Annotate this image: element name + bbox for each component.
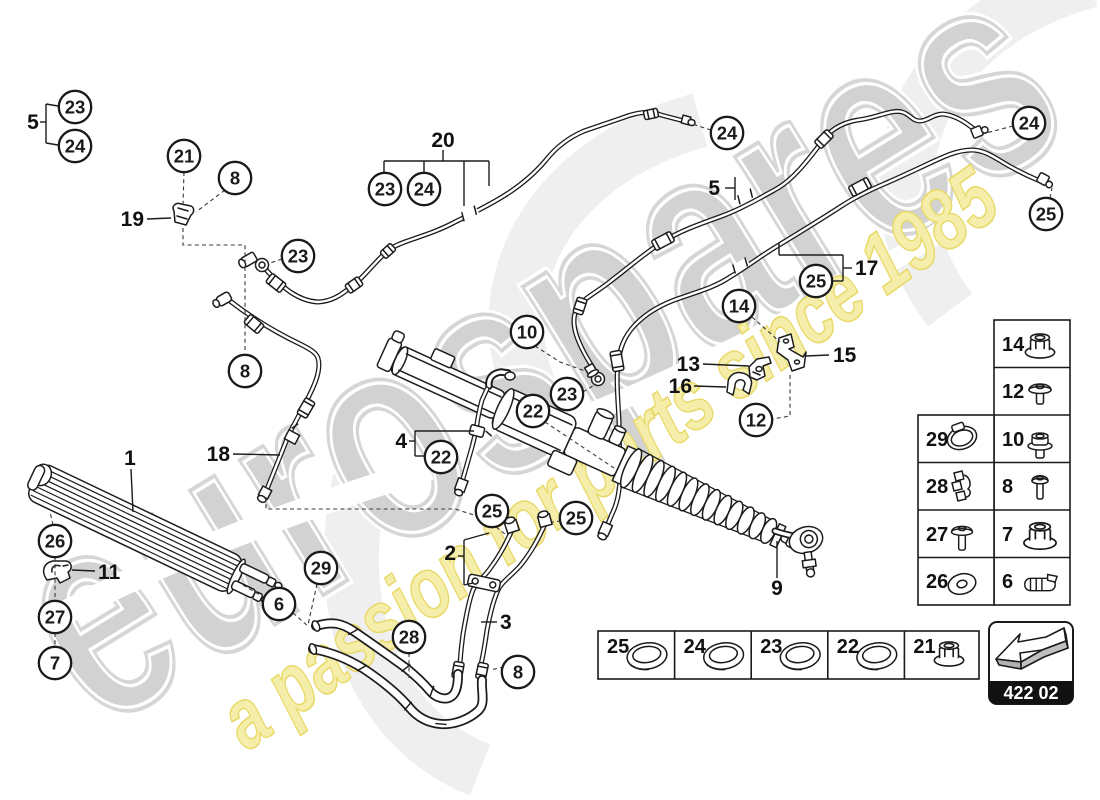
- svg-text:24: 24: [717, 123, 738, 144]
- svg-text:18: 18: [207, 443, 231, 466]
- svg-text:24: 24: [1019, 113, 1040, 134]
- svg-text:10: 10: [517, 322, 538, 343]
- svg-text:19: 19: [121, 208, 144, 231]
- svg-text:12: 12: [1002, 381, 1024, 403]
- svg-text:29: 29: [311, 558, 332, 579]
- svg-text:25: 25: [566, 508, 587, 529]
- svg-text:22: 22: [523, 401, 544, 422]
- svg-text:7: 7: [1002, 524, 1013, 546]
- svg-text:23: 23: [557, 384, 578, 405]
- svg-text:422 02: 422 02: [1003, 683, 1058, 703]
- svg-text:28: 28: [399, 627, 420, 648]
- svg-text:21: 21: [913, 636, 935, 658]
- svg-text:4: 4: [395, 430, 407, 453]
- svg-text:23: 23: [760, 636, 782, 658]
- svg-text:2: 2: [444, 542, 456, 565]
- svg-text:25: 25: [1036, 204, 1057, 225]
- svg-text:7: 7: [50, 653, 60, 674]
- svg-text:8: 8: [1002, 476, 1013, 498]
- svg-text:24: 24: [414, 179, 435, 200]
- svg-text:5: 5: [708, 177, 720, 200]
- svg-text:16: 16: [669, 375, 692, 398]
- svg-text:22: 22: [837, 636, 859, 658]
- svg-text:6: 6: [274, 594, 284, 615]
- svg-text:8: 8: [230, 168, 240, 189]
- svg-text:25: 25: [607, 636, 629, 658]
- svg-text:27: 27: [45, 607, 66, 628]
- svg-text:23: 23: [288, 246, 309, 267]
- svg-text:29: 29: [926, 429, 948, 451]
- svg-text:9: 9: [771, 577, 783, 600]
- svg-text:17: 17: [855, 257, 878, 280]
- svg-text:11: 11: [98, 561, 121, 584]
- svg-text:23: 23: [65, 97, 86, 118]
- svg-text:1: 1: [124, 447, 136, 470]
- svg-text:6: 6: [1002, 571, 1013, 593]
- svg-text:25: 25: [806, 271, 827, 292]
- svg-text:23: 23: [375, 179, 396, 200]
- svg-text:8: 8: [240, 361, 250, 382]
- svg-text:27: 27: [926, 524, 948, 546]
- svg-text:3: 3: [500, 611, 512, 634]
- svg-text:28: 28: [926, 476, 948, 498]
- svg-text:22: 22: [431, 447, 452, 468]
- svg-text:21: 21: [174, 146, 195, 167]
- svg-text:10: 10: [1002, 429, 1024, 451]
- svg-text:14: 14: [729, 296, 750, 317]
- svg-text:14: 14: [1002, 334, 1025, 356]
- svg-text:26: 26: [45, 531, 66, 552]
- svg-text:13: 13: [677, 353, 700, 376]
- svg-text:20: 20: [431, 129, 454, 152]
- svg-text:8: 8: [513, 662, 523, 683]
- svg-text:24: 24: [65, 136, 86, 157]
- svg-text:5: 5: [27, 111, 39, 134]
- svg-text:25: 25: [482, 501, 503, 522]
- svg-text:24: 24: [684, 636, 707, 658]
- svg-text:12: 12: [746, 410, 767, 431]
- svg-text:26: 26: [926, 571, 948, 593]
- svg-text:15: 15: [833, 344, 857, 367]
